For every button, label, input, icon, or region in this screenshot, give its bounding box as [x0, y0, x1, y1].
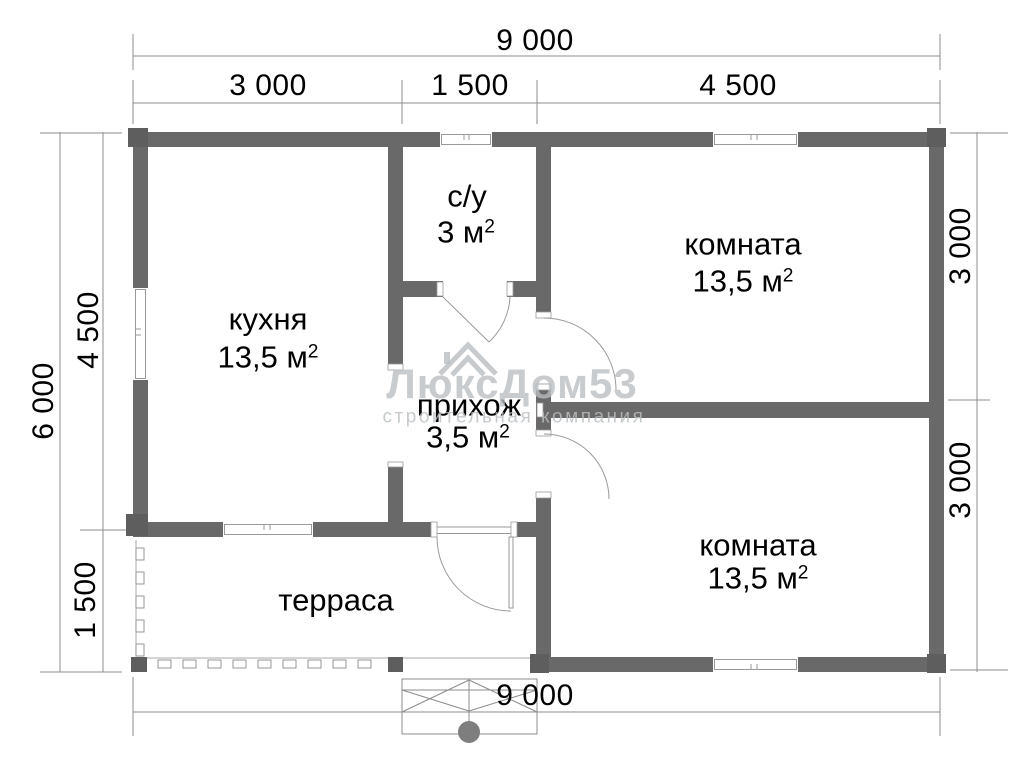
bathroom-door — [443, 297, 510, 342]
hall-right-wall-upper — [536, 132, 551, 318]
dim-left-total: 6 000 — [29, 362, 59, 440]
bathroom-area-sup: 2 — [484, 217, 495, 238]
room-bottom-window — [713, 657, 798, 672]
watermark-title: ЛюксДом53 — [386, 363, 637, 405]
dim-left-seg-bottom: 1 500 — [71, 561, 101, 639]
hall-right-wall-lower — [536, 498, 551, 672]
dim-top-seg-mid: 1 500 — [431, 71, 509, 101]
kitchen-terrace-window — [223, 522, 313, 537]
terrace-label: терраса — [278, 585, 394, 616]
entry-right-stub — [517, 522, 536, 537]
kitchen-hall-wall-upper — [388, 132, 403, 370]
room-bottom-area-sup: 2 — [798, 563, 809, 584]
dim-top-seg-right: 4 500 — [699, 71, 777, 101]
dim-top-total: 9 000 — [496, 26, 574, 56]
bathroom-area: 3 м2 — [437, 217, 495, 248]
room-top-label: комната — [684, 229, 801, 260]
porch-column — [458, 721, 480, 743]
room-bottom-label: комната — [699, 530, 816, 561]
terrace-post-left — [131, 657, 147, 672]
terrace-post-right — [388, 657, 403, 672]
floor-plan: 9 000 3 000 1 500 4 500 6 000 4 500 1 50… — [0, 0, 1024, 768]
bathroom-label: с/у — [447, 181, 487, 212]
room-top-area-sup: 2 — [783, 266, 794, 287]
dim-right-seg-bottom: 3 000 — [946, 441, 976, 519]
kitchen-hall-wall-lower — [388, 462, 403, 522]
kitchen-area: 13,5 м2 — [218, 342, 319, 373]
room-bottom-area: 13,5 м2 — [708, 563, 809, 594]
dim-left-seg-top: 4 500 — [74, 291, 104, 369]
entry-door — [437, 527, 513, 611]
room-top-window — [713, 132, 798, 147]
watermark-subtitle: строительная компания — [383, 408, 646, 427]
dim-right-seg-top: 3 000 — [946, 207, 976, 285]
room-bottom-door — [544, 434, 609, 499]
room-top-area: 13,5 м2 — [693, 266, 794, 297]
dim-top-seg-left: 3 000 — [229, 71, 307, 101]
kitchen-side-window — [133, 288, 148, 380]
kitchen-label: кухня — [229, 304, 308, 335]
kitchen-area-sup: 2 — [308, 342, 319, 363]
bathroom-window — [440, 132, 492, 147]
dim-bottom-total: 9 000 — [496, 681, 574, 711]
